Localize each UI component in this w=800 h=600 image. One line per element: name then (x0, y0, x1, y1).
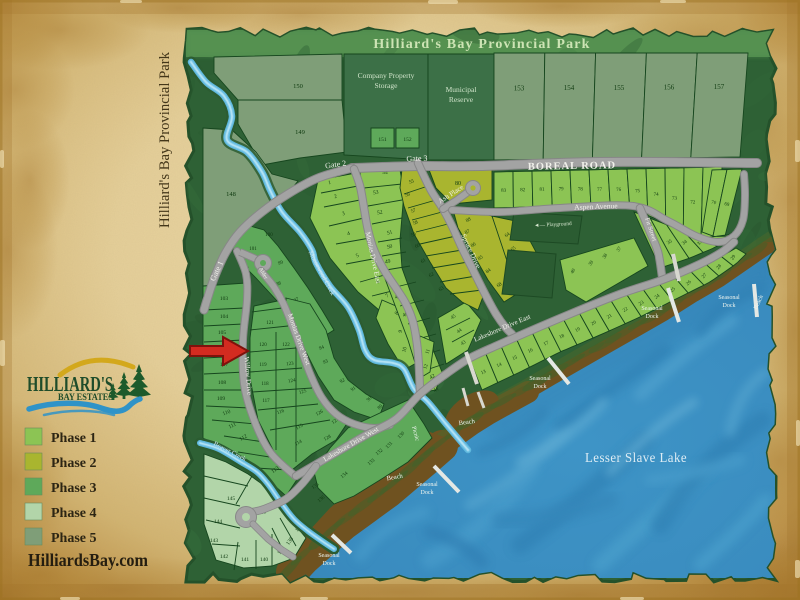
svg-text:Dock: Dock (534, 384, 547, 390)
svg-text:108: 108 (218, 380, 227, 386)
svg-text:148: 148 (226, 191, 236, 198)
svg-text:Dock: Dock (723, 303, 736, 309)
svg-text:Storage: Storage (375, 81, 399, 90)
svg-text:Dock: Dock (421, 490, 434, 496)
svg-text:142: 142 (220, 554, 229, 560)
svg-text:104: 104 (220, 314, 229, 320)
svg-text:81: 81 (539, 188, 545, 193)
svg-text:101: 101 (249, 247, 257, 252)
svg-text:78: 78 (578, 187, 584, 192)
svg-text:82: 82 (520, 188, 526, 193)
svg-text:Seasonal: Seasonal (718, 295, 740, 301)
svg-text:Lesser Slave Lake: Lesser Slave Lake (585, 451, 687, 466)
svg-text:Reserve: Reserve (449, 95, 474, 104)
svg-text:103: 103 (220, 296, 229, 302)
svg-text:117: 117 (262, 399, 270, 404)
svg-text:Aspen Avenue: Aspen Avenue (574, 201, 618, 212)
svg-text:HilliardsBay.com: HilliardsBay.com (28, 550, 148, 570)
svg-text:122: 122 (282, 343, 290, 348)
svg-text:75: 75 (635, 189, 641, 194)
svg-text:Seasonal: Seasonal (641, 306, 663, 312)
svg-text:Phase 3: Phase 3 (51, 481, 97, 496)
svg-text:120: 120 (259, 343, 267, 348)
svg-text:151: 151 (378, 137, 387, 143)
svg-text:119: 119 (259, 363, 267, 368)
svg-text:109: 109 (217, 396, 226, 402)
svg-text:Seasonal: Seasonal (318, 553, 340, 559)
svg-text:118: 118 (261, 382, 269, 387)
svg-text:149: 149 (295, 129, 305, 136)
svg-text:145: 145 (227, 496, 236, 502)
svg-text:Seasonal: Seasonal (416, 482, 438, 488)
svg-text:152: 152 (403, 137, 412, 143)
svg-text:Dock: Dock (646, 314, 659, 320)
svg-text:Phase 4: Phase 4 (51, 506, 97, 521)
svg-text:73: 73 (672, 197, 678, 202)
svg-text:72: 72 (690, 200, 696, 205)
svg-text:150: 150 (293, 83, 303, 90)
svg-text:141: 141 (241, 557, 250, 563)
svg-text:Dock: Dock (323, 561, 336, 567)
svg-text:143: 143 (210, 538, 219, 544)
svg-text:BOREAL ROAD: BOREAL ROAD (528, 160, 616, 173)
svg-text:BAY ESTATES: BAY ESTATES (58, 392, 113, 402)
svg-text:Hilliard's Bay Provincial Park: Hilliard's Bay Provincial Park (157, 51, 173, 228)
svg-text:144: 144 (214, 519, 223, 525)
svg-text:Company Property: Company Property (358, 71, 415, 80)
svg-text:156: 156 (664, 84, 675, 92)
svg-text:153: 153 (514, 84, 525, 92)
svg-text:157: 157 (714, 83, 725, 91)
svg-text:Phase 1: Phase 1 (51, 431, 97, 446)
svg-text:77: 77 (597, 188, 603, 193)
svg-text:Phase 5: Phase 5 (51, 531, 97, 546)
svg-text:79: 79 (559, 187, 565, 192)
svg-text:Seasonal: Seasonal (529, 376, 551, 382)
svg-text:154: 154 (564, 84, 575, 92)
svg-text:Hilliard's Bay Provincial Park: Hilliard's Bay Provincial Park (373, 37, 590, 52)
svg-text:Gate 3: Gate 3 (406, 154, 427, 164)
svg-text:100: 100 (265, 233, 273, 238)
svg-text:155: 155 (614, 84, 625, 92)
svg-text:123: 123 (286, 362, 294, 368)
svg-text:121: 121 (266, 321, 274, 326)
svg-text:74: 74 (654, 193, 660, 198)
svg-text:Phase 2: Phase 2 (51, 456, 97, 471)
svg-text:105: 105 (218, 330, 227, 336)
svg-text:76: 76 (616, 188, 622, 193)
svg-text:140: 140 (260, 557, 269, 563)
svg-text:Municipal: Municipal (446, 85, 477, 94)
svg-text:83: 83 (501, 189, 507, 194)
